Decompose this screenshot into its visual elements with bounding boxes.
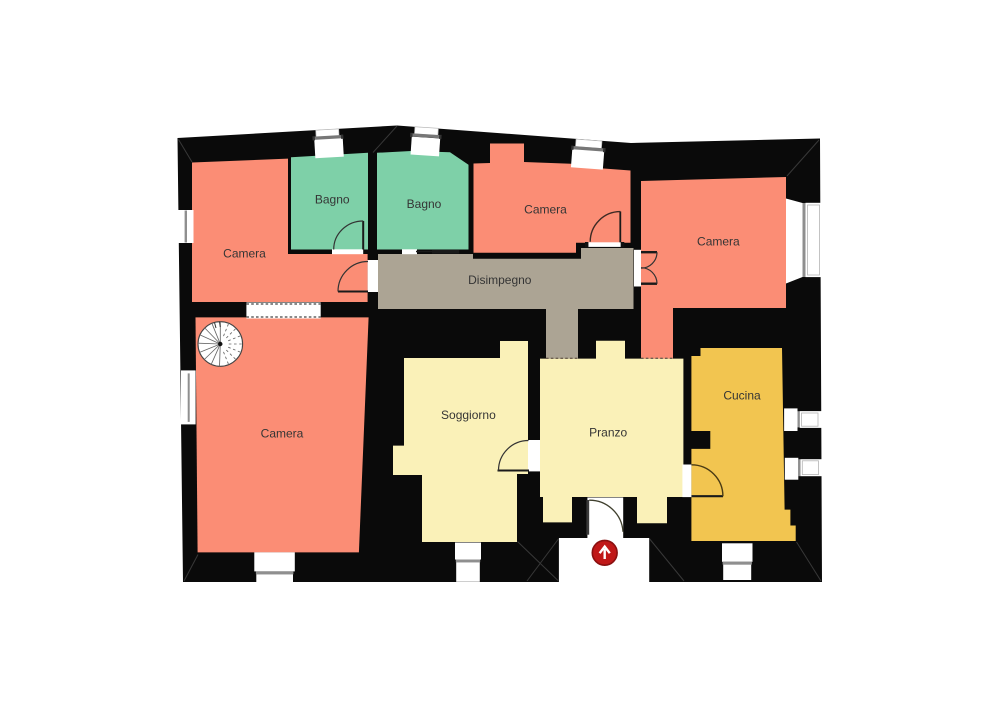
svg-text:Soggiorno: Soggiorno xyxy=(441,408,496,422)
svg-text:Pranzo: Pranzo xyxy=(589,426,627,440)
svg-text:Camera: Camera xyxy=(697,234,740,248)
svg-text:Bagno: Bagno xyxy=(407,197,442,211)
svg-text:Disimpegno: Disimpegno xyxy=(468,273,532,287)
svg-text:Camera: Camera xyxy=(261,426,304,440)
svg-text:Bagno: Bagno xyxy=(315,193,350,207)
svg-text:Camera: Camera xyxy=(223,246,266,260)
svg-text:Cucina: Cucina xyxy=(723,389,761,403)
svg-text:Camera: Camera xyxy=(524,203,567,217)
